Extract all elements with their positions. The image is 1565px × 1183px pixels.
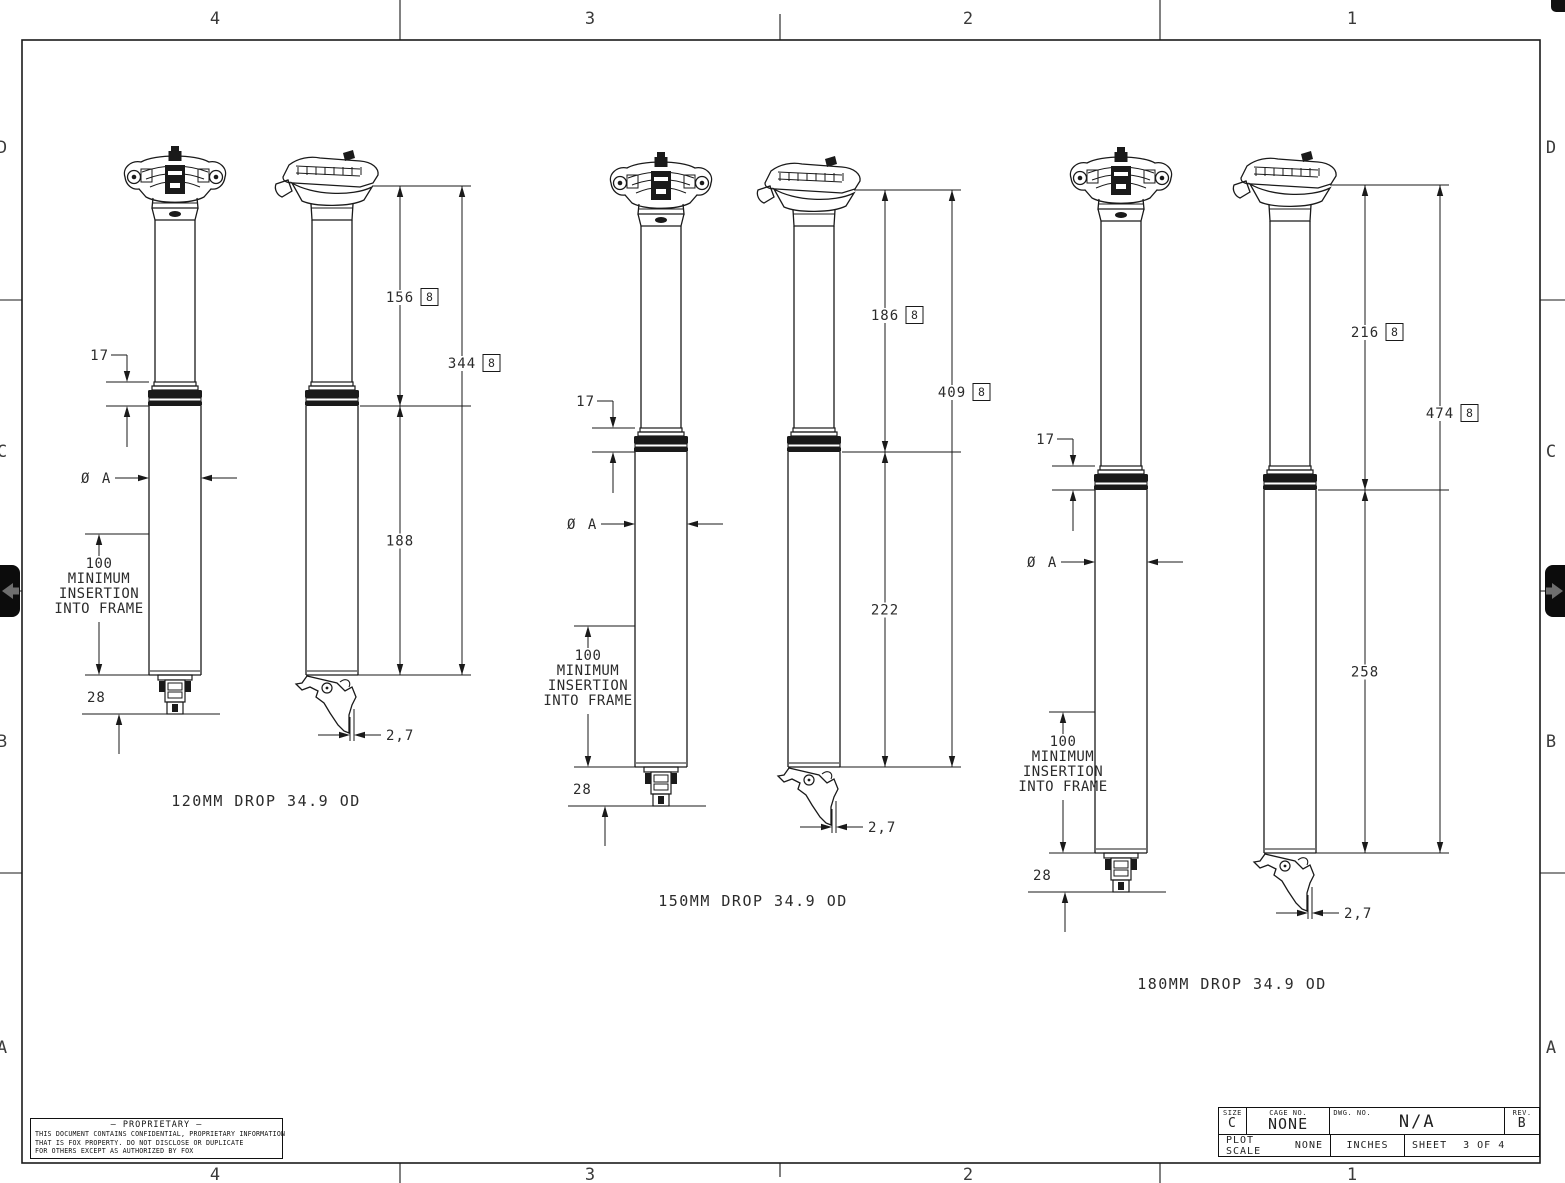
dim-arrow: [949, 756, 955, 767]
dim-arrow: [882, 756, 888, 767]
drawing-path: [283, 157, 378, 187]
seatpost-side-view: [275, 150, 378, 741]
units-value: INCHES: [1346, 1140, 1388, 1151]
zone-row-label-right: B: [1546, 732, 1556, 752]
post-group-150mm: 1868222409817Ø A100MINIMUMINSERTIONINTO …: [543, 152, 990, 910]
flag-note-value: 8: [426, 290, 433, 304]
group-label: 180MM DROP 34.9 OD: [1137, 975, 1327, 993]
zone-labels: 44332211DDCCBBAA: [0, 9, 1556, 1183]
upper-length-dim: 156: [386, 290, 414, 306]
proprietary-title: — PROPRIETARY —: [35, 1120, 278, 1130]
size-value: C: [1219, 1117, 1246, 1131]
dimensions: 2168258474817Ø A100MINIMUMINSERTIONINTO …: [1018, 185, 1478, 993]
insertion-note-line: MINIMUM: [1032, 749, 1095, 765]
diameter-dim: Ø A: [1027, 555, 1058, 571]
lower-length-dim: 188: [386, 534, 414, 550]
title-block: SIZE C CAGE NO. NONE DWG. NO. N/A REV. B…: [1218, 1107, 1540, 1157]
dim-arrow: [354, 732, 365, 738]
collar-height-dim: 17: [576, 394, 595, 410]
insertion-note-line: INTO FRAME: [543, 693, 632, 709]
dim-arrow: [96, 534, 102, 545]
proprietary-line: THIS DOCUMENT CONTAINS CONFIDENTIAL, PRO…: [35, 1130, 278, 1139]
dim-arrow: [1437, 185, 1443, 196]
title-block-cage-cell: CAGE NO. NONE: [1247, 1108, 1330, 1134]
dim-arrow: [836, 824, 847, 830]
dim-arrow: [1147, 559, 1158, 565]
units-cell: INCHES: [1331, 1135, 1405, 1156]
cad-drawing-canvas: 44332211DDCCBBAA1568188344817Ø A100MINIM…: [0, 0, 1565, 1183]
dim-arrow: [124, 406, 130, 417]
zone-column-label-top: 1: [1347, 9, 1357, 29]
zone-column-label-bottom: 3: [585, 1165, 595, 1183]
sheet-cell: SHEET 3 OF 4: [1405, 1135, 1537, 1156]
drawing-path: [1241, 158, 1336, 188]
insertion-note-line: 100: [575, 648, 602, 664]
sheet-value: 3 OF 4: [1463, 1140, 1505, 1151]
post-group-120mm: 1568188344817Ø A100MINIMUMINSERTIONINTO …: [54, 146, 500, 810]
dim-arrow: [624, 521, 635, 527]
group-label: 120MM DROP 34.9 OD: [171, 792, 361, 810]
insertion-note-line: INSERTION: [548, 678, 628, 694]
dim-arrow: [201, 475, 212, 481]
dim-line: [1254, 174, 1318, 177]
insertion-note-line: INTO FRAME: [1018, 779, 1107, 795]
zone-column-label-top: 4: [210, 9, 220, 29]
prev-sheet-tab[interactable]: [0, 565, 20, 617]
dim-arrow: [138, 475, 149, 481]
drawing-sheet: 44332211DDCCBBAA1568188344817Ø A100MINIM…: [0, 0, 1565, 1183]
lower-length-dim: 222: [871, 603, 899, 619]
collar-height-dim: 17: [1036, 432, 1055, 448]
flag-note-value: 8: [1391, 325, 1398, 339]
dim-arrow: [882, 441, 888, 452]
insertion-note-line: INSERTION: [1023, 764, 1103, 780]
dim-arrow: [397, 664, 403, 675]
dim-arrow: [610, 417, 616, 428]
drawing-path: [296, 676, 356, 733]
dimensions: 1568188344817Ø A100MINIMUMINSERTIONINTO …: [54, 186, 500, 810]
offset-dim: 2,7: [1344, 906, 1372, 922]
dim-arrow: [1060, 712, 1066, 723]
dim-arrow: [1060, 842, 1066, 853]
dim-arrow: [1062, 892, 1068, 903]
total-length-dim: 344: [448, 356, 476, 372]
plot-scale-value: NONE: [1295, 1140, 1323, 1151]
post-group-180mm: 2168258474817Ø A100MINIMUMINSERTIONINTO …: [1018, 147, 1478, 993]
dim-arrow: [397, 406, 403, 417]
sheet-frame: [0, 0, 1565, 1183]
tip-length-dim: 28: [87, 690, 106, 706]
drawing-path: [340, 680, 350, 687]
insertion-note-line: INTO FRAME: [54, 601, 143, 617]
zone-row-label-right: D: [1546, 138, 1556, 158]
dim-arrow: [459, 186, 465, 197]
insertion-note-line: MINIMUM: [557, 663, 620, 679]
title-block-rev-cell: REV. B: [1505, 1108, 1539, 1134]
dim-arrow: [96, 664, 102, 675]
title-block-size-cell: SIZE C: [1219, 1108, 1247, 1134]
corner-widget: [1551, 0, 1565, 12]
collar-height-dim: 17: [90, 348, 109, 364]
flag-note-value: 8: [488, 356, 495, 370]
dwg-no-label: DWG. NO.: [1333, 1109, 1371, 1117]
proprietary-notice: — PROPRIETARY — THIS DOCUMENT CONTAINS C…: [30, 1118, 283, 1159]
flag-note-value: 8: [911, 308, 918, 322]
flag-note-value: 8: [978, 385, 985, 399]
dim-arrow: [1437, 842, 1443, 853]
dim-arrow: [397, 395, 403, 406]
zone-row-label-left: D: [0, 138, 7, 158]
dim-arrow: [1362, 842, 1368, 853]
upper-length-dim: 186: [871, 308, 899, 324]
dim-arrow: [1070, 490, 1076, 501]
zone-column-label-bottom: 4: [210, 1165, 220, 1183]
diameter-dim: Ø A: [567, 517, 598, 533]
dim-arrow: [882, 452, 888, 463]
tip-length-dim: 28: [1033, 868, 1052, 884]
insertion-note-line: INSERTION: [59, 586, 139, 602]
dim-arrow: [585, 756, 591, 767]
drawing-path: [793, 210, 835, 226]
insertion-note-line: 100: [1050, 734, 1077, 750]
drawing-path: [275, 180, 292, 197]
drawing-path: [1269, 205, 1311, 221]
drawing-path: [311, 204, 353, 220]
dim-arrow: [602, 806, 608, 817]
flag-note-value: 8: [1466, 406, 1473, 420]
zone-row-label-right: A: [1546, 1038, 1556, 1058]
upper-length-dim: 216: [1351, 325, 1379, 341]
dim-arrow: [124, 371, 130, 382]
dim-arrow: [610, 452, 616, 463]
title-block-dwg-cell: DWG. NO. N/A: [1330, 1108, 1505, 1134]
zone-row-label-left: B: [0, 732, 7, 752]
zone-column-label-top: 2: [963, 9, 973, 29]
dim-line: [1254, 167, 1318, 170]
offset-dim: 2,7: [868, 820, 896, 836]
zone-row-label-left: C: [0, 442, 7, 462]
next-sheet-tab[interactable]: [1545, 565, 1565, 617]
dim-line: [778, 179, 842, 182]
dim-line: [296, 173, 360, 176]
rev-value: B: [1505, 1117, 1539, 1131]
seatpost-side-view: [1233, 151, 1336, 919]
plot-scale-cell: PLOT SCALE NONE: [1219, 1135, 1331, 1156]
drawing-path: [778, 768, 838, 825]
tip-length-dim: 28: [573, 782, 592, 798]
cage-no-value: NONE: [1247, 1117, 1329, 1131]
drawing-path: [1254, 854, 1314, 911]
zone-column-label-top: 3: [585, 9, 595, 29]
dim-arrow: [1362, 490, 1368, 501]
lower-length-dim: 258: [1351, 665, 1379, 681]
dim-arrow: [585, 626, 591, 637]
diameter-dim: Ø A: [81, 471, 112, 487]
drawing-path: [822, 772, 832, 779]
dim-arrow: [949, 190, 955, 201]
offset-dim: 2,7: [386, 728, 414, 744]
dim-arrow: [882, 190, 888, 201]
dim-arrow: [1312, 910, 1323, 916]
drawing-path: [1233, 181, 1250, 198]
dim-line: [296, 166, 360, 169]
total-length-dim: 409: [938, 385, 966, 401]
dim-arrow: [397, 186, 403, 197]
dim-arrow: [459, 664, 465, 675]
insertion-note-line: MINIMUM: [68, 571, 131, 587]
dimensions: 1868222409817Ø A100MINIMUMINSERTIONINTO …: [543, 190, 990, 910]
zone-column-label-bottom: 1: [1347, 1165, 1357, 1183]
zone-row-label-right: C: [1546, 442, 1556, 462]
dim-arrow: [1070, 455, 1076, 466]
drawing-path: [765, 163, 860, 193]
proprietary-line: FOR OTHERS EXCEPT AS AUTHORIZED BY FOX: [35, 1147, 278, 1156]
dim-line: [778, 172, 842, 175]
insertion-note-line: 100: [86, 556, 113, 572]
plot-scale-label: PLOT SCALE: [1226, 1135, 1295, 1157]
seatpost-side-view: [757, 156, 860, 833]
corner-widget: [1551, 0, 1565, 12]
zone-column-label-bottom: 2: [963, 1165, 973, 1183]
dim-arrow: [116, 714, 122, 725]
dim-arrow: [1084, 559, 1095, 565]
zone-row-label-left: A: [0, 1038, 7, 1058]
seatpost-front-view: [124, 146, 225, 714]
proprietary-line: THAT IS FOX PROPERTY. DO NOT DISCLOSE OR…: [35, 1139, 278, 1148]
drawing-path: [1298, 858, 1308, 865]
dim-arrow: [687, 521, 698, 527]
total-length-dim: 474: [1426, 406, 1454, 422]
dim-arrow: [1362, 185, 1368, 196]
group-label: 150MM DROP 34.9 OD: [658, 892, 848, 910]
dim-arrow: [1362, 479, 1368, 490]
sheet-label: SHEET: [1412, 1140, 1447, 1151]
drawing-path: [757, 186, 774, 203]
